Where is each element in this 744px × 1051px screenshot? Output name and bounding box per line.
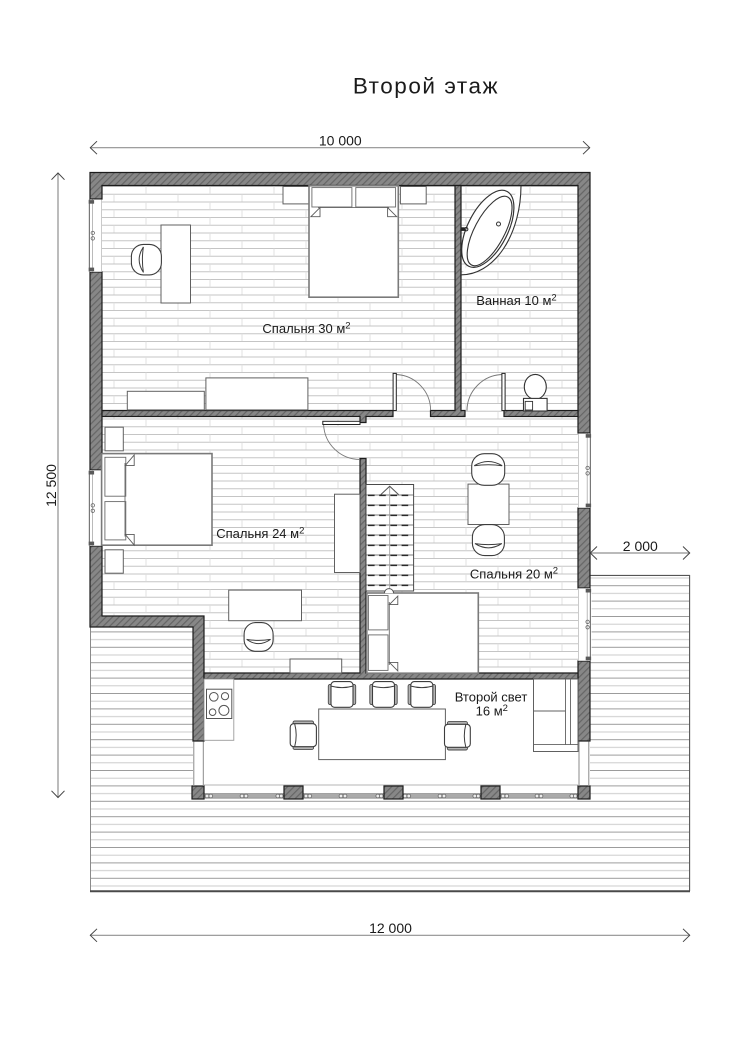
svg-text:Спальня 30 м2: Спальня 30 м2: [262, 320, 350, 336]
svg-text:Ванная 10 м2: Ванная 10 м2: [476, 293, 556, 309]
svg-text:Спальня 24 м2: Спальня 24 м2: [216, 526, 304, 542]
svg-text:Второй этаж: Второй этаж: [353, 74, 499, 99]
svg-text:16 м2: 16 м2: [476, 703, 508, 719]
svg-text:Спальня 20 м2: Спальня 20 м2: [470, 566, 558, 582]
svg-text:12 000: 12 000: [369, 920, 412, 936]
svg-text:2 000: 2 000: [623, 538, 658, 554]
svg-text:12 500: 12 500: [43, 464, 59, 507]
svg-text:10 000: 10 000: [319, 132, 362, 148]
svg-text:Второй свет: Второй свет: [455, 690, 528, 705]
